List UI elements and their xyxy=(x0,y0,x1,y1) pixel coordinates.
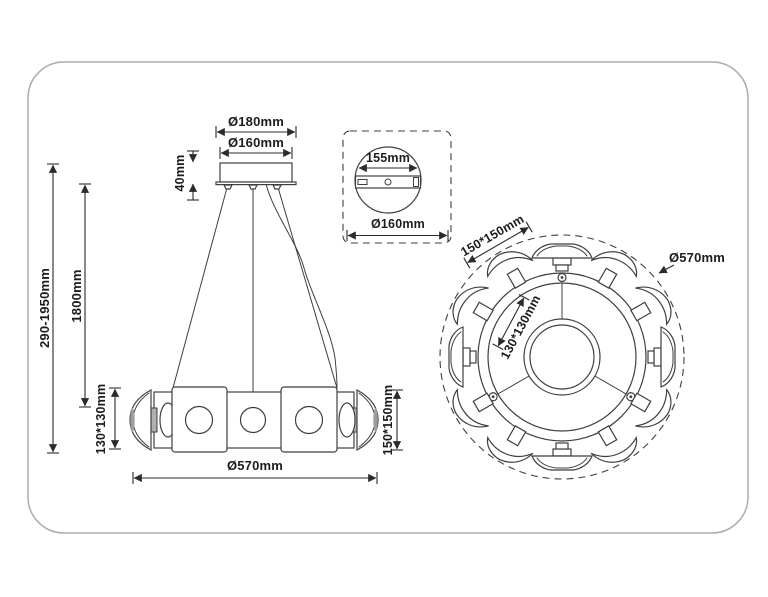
dim-bracket-length: 155mm xyxy=(366,151,410,165)
dim-canopy-outer: Ø180mm xyxy=(228,114,284,129)
lens-opening xyxy=(241,408,266,433)
dim-suspension-length: 1800mm xyxy=(69,269,84,322)
lens-opening xyxy=(186,407,213,434)
technical-drawing-page: Ø180mm Ø160mm 40mm 290-1950mm 1800mm xyxy=(0,0,768,597)
dim-overall-height: 290-1950mm xyxy=(37,268,52,348)
dim-canopy-inner: Ø160mm xyxy=(228,135,284,150)
dim-side-lens: 130*130mm xyxy=(94,384,108,455)
page-frame xyxy=(28,62,748,533)
mounting-bracket xyxy=(356,176,421,188)
dim-plate-diameter: Ø160mm xyxy=(371,217,425,231)
lamp-body xyxy=(130,387,378,452)
ceiling-canopy xyxy=(216,163,296,189)
dim-end-lens: 150*150mm xyxy=(381,385,395,456)
dim-top-diameter: Ø570mm xyxy=(669,250,725,265)
drawing-canvas: Ø180mm Ø160mm 40mm 290-1950mm 1800mm xyxy=(0,0,768,597)
cord-gland xyxy=(249,185,257,189)
lens-opening xyxy=(296,407,323,434)
dim-canopy-height: 40mm xyxy=(173,155,187,192)
edge-lens xyxy=(339,403,355,437)
cord-gland xyxy=(224,185,232,189)
cord-gland xyxy=(273,185,281,189)
dim-body-diameter: Ø570mm xyxy=(227,458,283,473)
